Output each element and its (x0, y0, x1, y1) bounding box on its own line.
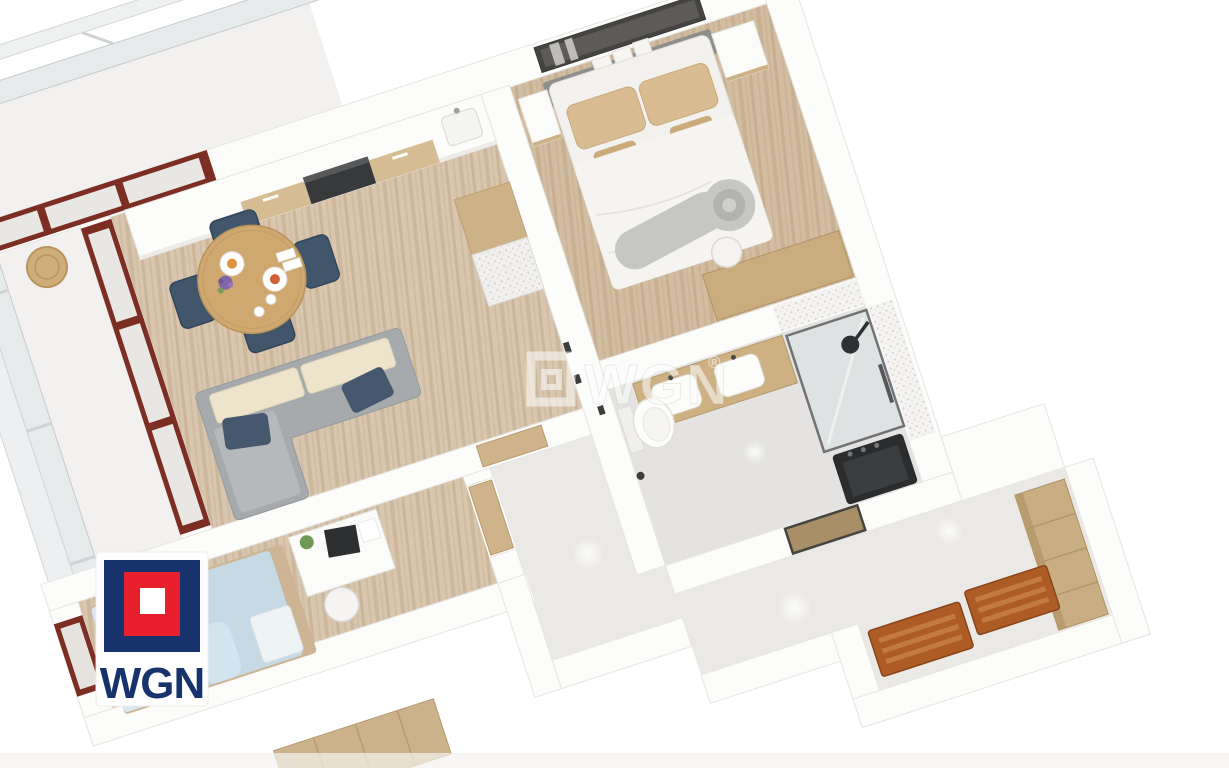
logo-text: WGN (100, 659, 205, 708)
watermark-registered-mark: ® (708, 353, 721, 372)
sofa-pillow-navy (222, 412, 272, 450)
logo-white-square (140, 588, 165, 614)
bottom-edge-strip (0, 753, 1229, 768)
floor-plan-page: { "page": { "type": "3d-apartment-floor-… (0, 0, 1229, 768)
floor-plan-render: WGN ® WGN (0, 0, 1229, 768)
wgn-logo: WGN (96, 552, 208, 708)
laptop (324, 525, 360, 558)
